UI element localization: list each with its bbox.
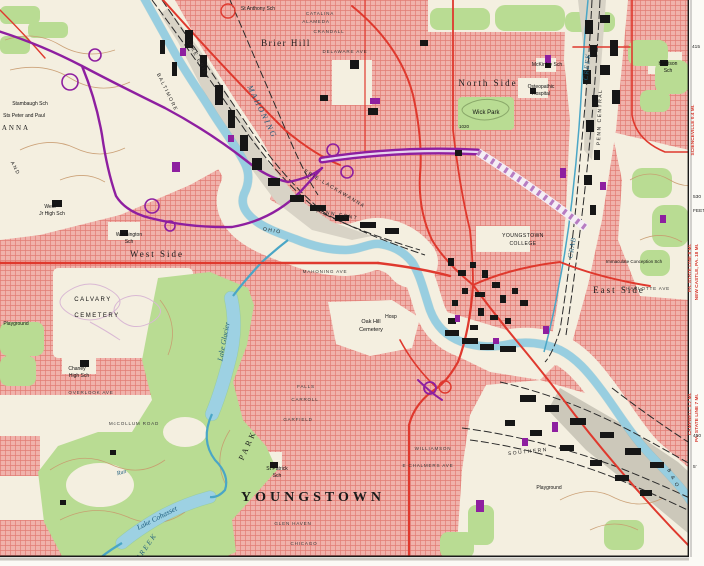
label-places-1: CALVARY: [74, 297, 112, 303]
topo-map-viewport: YOUNGSTOWNNorth SideWest SideEast SideBr…: [0, 0, 704, 566]
label-streets-1: ALAMEDA: [302, 19, 330, 24]
label-margin_red-1: PA. STATE LINE 8 MI.: [687, 244, 693, 292]
label-places-10: Sts Peter and Paul: [3, 113, 45, 119]
label-streets-14: CHARLOTTE AVE: [622, 286, 670, 291]
label-places-11: West: [44, 204, 56, 210]
label-streets-11: CHICAGO: [290, 541, 317, 546]
label-places-9: Stambaugh Sch: [12, 101, 48, 107]
label-places-4: Cemetery: [359, 327, 383, 333]
label-streets-3: DELAWARE AVE: [323, 49, 368, 54]
bottom-shadow: [0, 558, 689, 561]
label-margin_black-2: FEET: [693, 208, 704, 214]
label-places-12: Jr High Sch: [39, 211, 65, 217]
label-margin_black-4: 5': [693, 464, 697, 470]
label-streets-9: FALLS: [297, 384, 315, 389]
label-places-13: Washington: [116, 232, 142, 238]
label-streets-8: CARROLL: [291, 397, 318, 402]
label-streets-6: McCOLLUM ROAD: [109, 421, 159, 426]
label-margin_black-3: 450: [693, 433, 701, 439]
label-places-6: YOUNGSTOWN: [502, 233, 544, 239]
label-places-14: Sch: [125, 239, 134, 245]
label-places-20: Osteopathic: [528, 84, 555, 90]
label-west-side: West Side: [130, 249, 184, 259]
label-places-24: Immaculate Conception Sch: [606, 259, 663, 264]
label-places-8: St Anthony Sch: [241, 6, 275, 12]
label-streets-12: WILLIAMSON: [415, 446, 452, 451]
label-places-0: Wick Park: [473, 110, 501, 116]
label-places-2: CEMETERY: [74, 313, 119, 319]
topo-map-canvas: YOUNGSTOWNNorth SideWest SideEast SideBr…: [0, 0, 704, 566]
label-margin_black-1: 530: [693, 194, 701, 200]
label-north-side: North Side: [458, 78, 517, 88]
label-places-17: St Patrick: [266, 466, 288, 472]
label-streets-5: OVERLOOK AVE: [68, 390, 113, 395]
label-streets-2: CRANDALL: [314, 29, 345, 34]
label-youngstown: YOUNGSTOWN: [241, 490, 385, 505]
label-margin_red-2: NEW CASTLE, PA. 18 MI.: [694, 244, 700, 301]
label-margin_black-0: 415: [692, 44, 700, 50]
label-streets-13: E CHALMERS AVE: [403, 463, 454, 468]
label-brier-hill: Brier Hill: [261, 38, 311, 48]
label-places-21: Hospital: [532, 91, 550, 97]
label-places-5: Hosp: [385, 314, 397, 320]
label-streets-4: MAHONING AVE: [303, 269, 348, 274]
label-places-27: 1020: [459, 124, 470, 129]
label-places-26: Playground: [3, 321, 29, 327]
label-margin_red-0: SCIENCEVILLE 0.4 MI.: [690, 105, 696, 156]
label-places-23: Sch: [664, 68, 673, 74]
label-places-15: Chaney: [68, 366, 86, 372]
label-places-16: High Sch: [69, 373, 90, 379]
label-places-18: Sch: [273, 473, 282, 479]
label-margin_red-3: CAMPBELL 1.7 MI.: [687, 393, 693, 436]
label-places-7: COLLEGE: [509, 241, 536, 247]
label-streets-7: GARFIELD: [283, 417, 312, 422]
label-streets-0: CATALINA: [306, 11, 334, 16]
label-places-25: Playground: [536, 485, 562, 491]
label-anna: ANNA: [2, 124, 30, 132]
label-streets-10: GLEN HAVEN: [274, 521, 311, 526]
label-places-22: Harrison: [659, 61, 678, 67]
label-places-3: Oak Hill: [361, 319, 380, 325]
label-places-19: McKinley Sch: [532, 62, 563, 68]
